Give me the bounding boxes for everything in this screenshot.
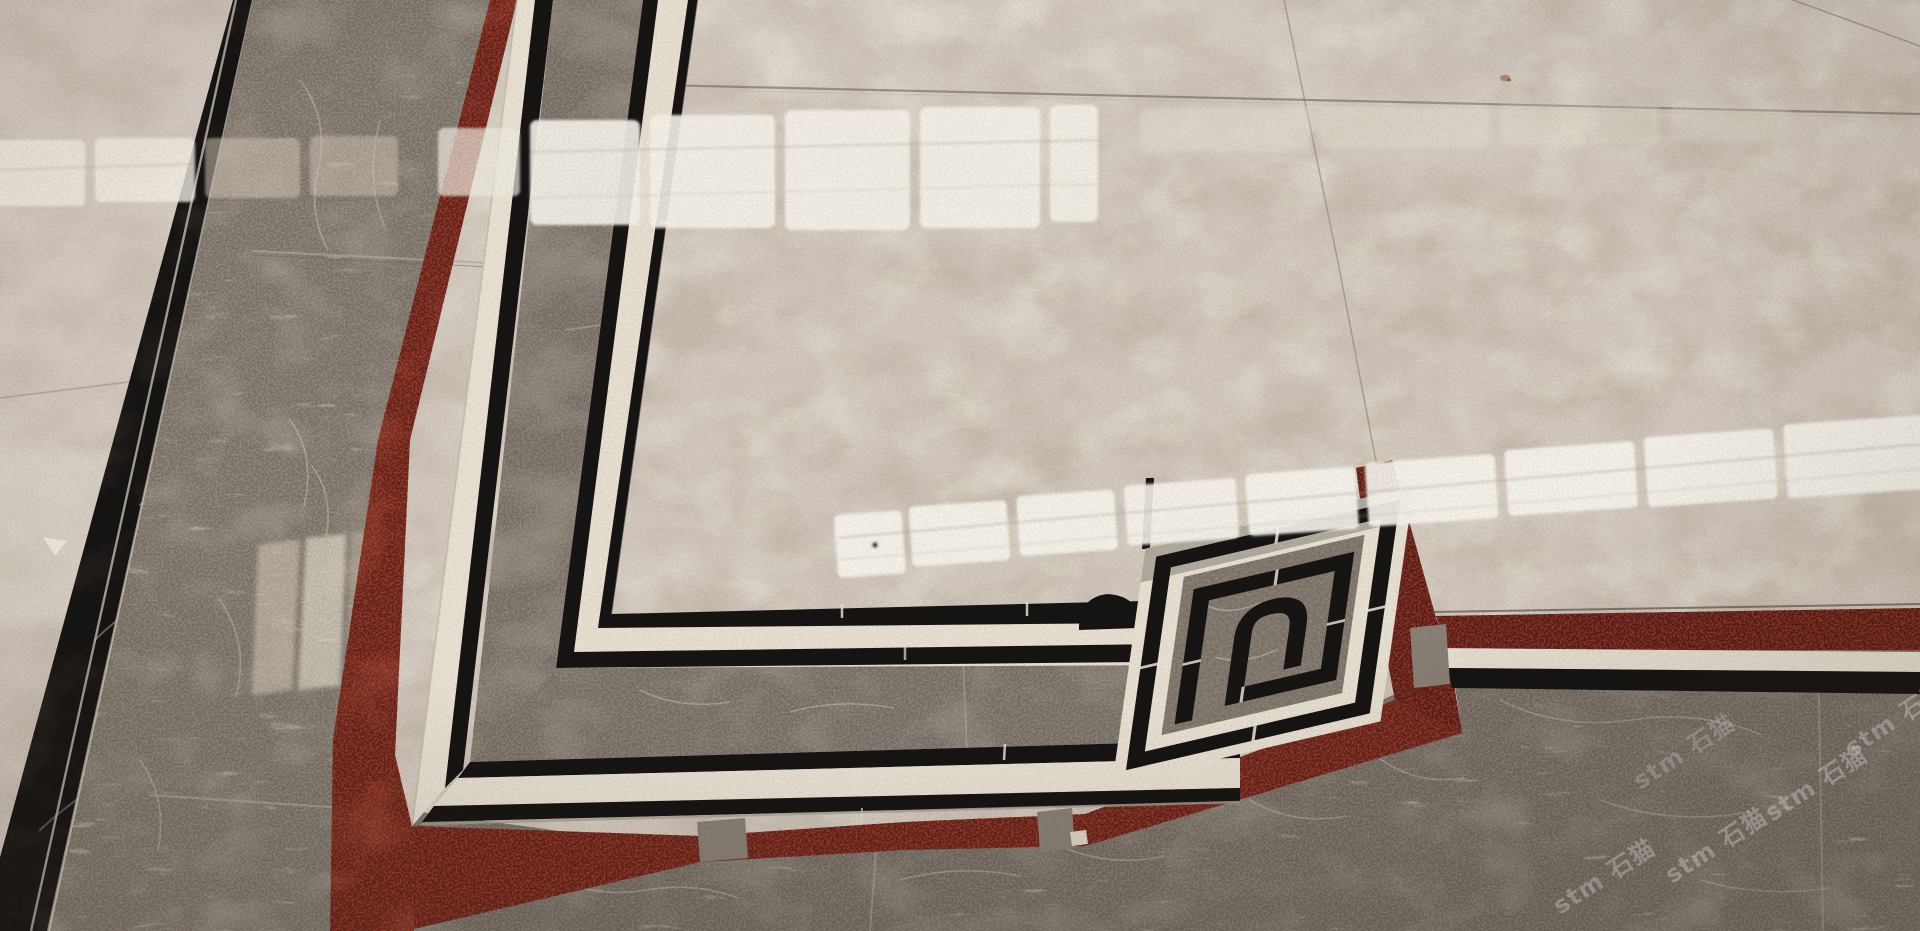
photo-grain [0,0,1920,931]
marble-floor-photo: stm 石猫 stm 石猫 stm 石猫 stm 石猫 stm 石猫 [0,0,1920,931]
screenshot-root: stm 石猫 stm 石猫 stm 石猫 stm 石猫 stm 石猫 [0,0,1920,931]
